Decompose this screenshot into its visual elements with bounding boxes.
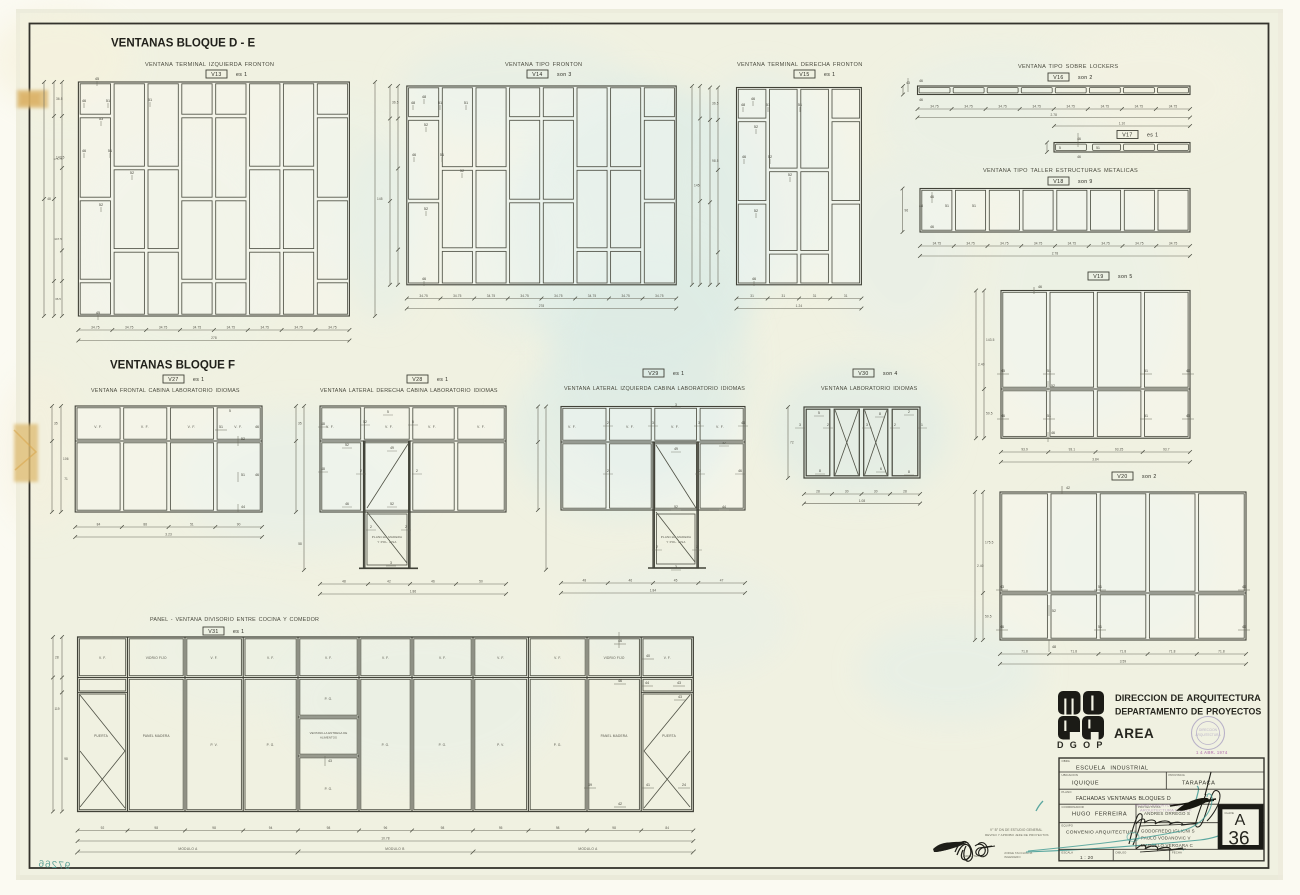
svg-text:46: 46 — [1077, 155, 1081, 159]
svg-text:V15: V15 — [799, 72, 809, 78]
svg-text:51: 51 — [108, 149, 112, 153]
svg-text:31: 31 — [844, 294, 848, 298]
svg-text:93.25: 93.25 — [1115, 448, 1124, 452]
svg-text:3: 3 — [799, 423, 801, 427]
svg-text:45: 45 — [96, 311, 100, 315]
svg-text:34.75: 34.75 — [1135, 105, 1144, 109]
svg-text:34.75: 34.75 — [520, 294, 529, 298]
svg-text:1.86: 1.86 — [410, 590, 417, 594]
svg-text:52: 52 — [241, 437, 245, 441]
svg-text:EQUIPO: EQUIPO — [1062, 824, 1074, 828]
svg-text:98: 98 — [64, 757, 68, 761]
svg-text:46: 46 — [431, 580, 435, 584]
svg-text:51: 51 — [190, 523, 194, 527]
svg-text:46: 46 — [82, 99, 86, 103]
svg-text:3: 3 — [675, 403, 677, 407]
svg-text:V. F.: V. F. — [141, 425, 149, 429]
svg-text:ALIMENTOS: ALIMENTOS — [320, 736, 337, 740]
svg-text:P. G.: P. G. — [325, 697, 333, 701]
svg-text:36: 36 — [1228, 829, 1249, 850]
svg-text:34.75: 34.75 — [1169, 105, 1178, 109]
svg-text:5: 5 — [229, 409, 231, 413]
svg-text:46: 46 — [255, 473, 259, 477]
svg-text:52: 52 — [754, 209, 758, 213]
svg-text:51: 51 — [972, 204, 976, 208]
svg-text:34.75: 34.75 — [1101, 242, 1110, 246]
svg-text:51: 51 — [1144, 414, 1148, 418]
svg-text:39: 39 — [588, 783, 592, 787]
svg-text:V. F.: V. F. — [439, 656, 446, 660]
svg-text:119: 119 — [54, 707, 59, 711]
svg-text:52: 52 — [424, 207, 428, 211]
svg-text:MODULO B: MODULO B — [385, 847, 404, 851]
svg-text:Y POL. LISA: Y POL. LISA — [377, 540, 396, 544]
svg-text:PLANCHA MADERA: PLANCHA MADERA — [372, 535, 402, 539]
svg-text:V27: V27 — [168, 377, 178, 383]
svg-text:2: 2 — [370, 525, 372, 529]
svg-text:71.8: 71.8 — [1021, 650, 1028, 654]
svg-text:93.1: 93.1 — [1069, 448, 1076, 452]
svg-text:51: 51 — [766, 103, 770, 107]
svg-text:36.5: 36.5 — [55, 297, 61, 301]
svg-text:son 5: son 5 — [1118, 274, 1133, 280]
svg-text:34.75: 34.75 — [1067, 105, 1076, 109]
svg-text:V30: V30 — [858, 371, 868, 377]
svg-text:VIDRIO FIJO: VIDRIO FIJO — [146, 656, 167, 660]
svg-text:A: A — [1235, 812, 1246, 829]
svg-text:MODULO A: MODULO A — [578, 847, 598, 851]
svg-text:46: 46 — [1038, 285, 1042, 289]
svg-text:34.75: 34.75 — [1000, 242, 1009, 246]
svg-text:51: 51 — [241, 473, 245, 477]
svg-text:OBRA: OBRA — [1062, 759, 1070, 763]
svg-text:34.75: 34.75 — [1068, 242, 1077, 246]
svg-text:52: 52 — [768, 155, 772, 159]
svg-text:34.75: 34.75 — [419, 294, 428, 298]
svg-text:52: 52 — [130, 171, 134, 175]
svg-text:42: 42 — [387, 580, 391, 584]
svg-text:46: 46 — [618, 679, 622, 683]
svg-text:46: 46 — [412, 153, 416, 157]
svg-text:45: 45 — [1001, 369, 1005, 373]
svg-text:43: 43 — [328, 759, 332, 763]
svg-text:42: 42 — [618, 802, 622, 806]
svg-text:31: 31 — [813, 294, 817, 298]
svg-text:Y POL. LISA: Y POL. LISA — [666, 540, 685, 544]
svg-text:1.10: 1.10 — [1119, 122, 1126, 126]
svg-text:147.5: 147.5 — [54, 237, 62, 241]
svg-text:PAULO VODANOVIC V: PAULO VODANOVIC V — [1141, 836, 1191, 841]
svg-text:46: 46 — [1051, 431, 1055, 435]
svg-text:84: 84 — [665, 826, 669, 830]
svg-text:52: 52 — [754, 125, 758, 129]
svg-text:52: 52 — [1052, 609, 1056, 613]
svg-text:1 : 20: 1 : 20 — [1080, 855, 1093, 860]
svg-text:42: 42 — [1066, 486, 1070, 490]
svg-text:88: 88 — [143, 523, 147, 527]
svg-text:es 1: es 1 — [236, 72, 247, 78]
svg-text:PLANCHA MADERA: PLANCHA MADERA — [661, 535, 691, 539]
svg-text:VENTANAS BLOQUE F: VENTANAS BLOQUE F — [110, 360, 235, 372]
svg-text:34.75: 34.75 — [655, 294, 664, 298]
svg-text:3.84: 3.84 — [1092, 458, 1099, 462]
svg-text:V29: V29 — [648, 371, 658, 377]
svg-text:95: 95 — [499, 826, 503, 830]
svg-text:48: 48 — [741, 103, 745, 107]
svg-text:48: 48 — [321, 422, 325, 426]
svg-text:40: 40 — [646, 654, 650, 658]
svg-text:P. G.: P. G. — [267, 743, 275, 747]
svg-text:71: 71 — [64, 477, 68, 481]
svg-text:5: 5 — [1059, 146, 1061, 150]
svg-text:V. F.: V. F. — [234, 425, 242, 429]
svg-text:34.75: 34.75 — [964, 105, 973, 109]
svg-text:34.75: 34.75 — [621, 294, 630, 298]
svg-text:VENTANA TERMINAL IZQUIERDA: VENTANA TERMINAL IZQUIERDA FRONTON — [145, 62, 274, 68]
svg-text:3: 3 — [390, 561, 392, 565]
svg-text:TARAPACA: TARAPACA — [1182, 781, 1215, 787]
svg-text:84: 84 — [97, 523, 101, 527]
svg-text:VENTANA TIPO FRONTON: VENTANA TIPO FRONTON — [505, 62, 582, 68]
svg-text:MODULO A: MODULO A — [178, 847, 198, 851]
svg-text:VENTANA LATERAL IZQUIERDA C: VENTANA LATERAL IZQUIERDA CABINA LABORAT… — [564, 386, 745, 392]
svg-text:V16: V16 — [1053, 75, 1063, 81]
svg-text:V13: V13 — [211, 72, 221, 78]
svg-text:24: 24 — [682, 783, 686, 787]
svg-text:V° B° DN DE ESTUDIO GENERAL: V° B° DN DE ESTUDIO GENERAL — [990, 828, 1042, 832]
svg-text:34.75: 34.75 — [1101, 105, 1110, 109]
svg-text:es 1: es 1 — [824, 72, 835, 78]
svg-text:145: 145 — [694, 183, 700, 187]
svg-text:34.75: 34.75 — [125, 326, 134, 330]
svg-text:46: 46 — [422, 277, 426, 281]
svg-text:P. V.: P. V. — [210, 743, 217, 747]
svg-text:51: 51 — [1047, 369, 1051, 373]
svg-text:P. G.: P. G. — [554, 743, 562, 747]
svg-text:145: 145 — [377, 197, 383, 201]
svg-text:V. F.: V. F. — [554, 656, 561, 660]
svg-text:2: 2 — [894, 423, 896, 427]
svg-text:VENTANA LATERAL DERECHA CAB: VENTANA LATERAL DERECHA CABINA LABORATOR… — [320, 388, 498, 394]
svg-text:VENTANILLA ENTREGA DE: VENTANILLA ENTREGA DE — [310, 731, 348, 735]
svg-text:2: 2 — [827, 423, 829, 427]
svg-text:48: 48 — [47, 197, 51, 201]
svg-text:6: 6 — [880, 467, 882, 471]
svg-text:34.75: 34.75 — [193, 326, 202, 330]
svg-text:ARQUITECTURA: ARQUITECTURA — [1195, 733, 1221, 737]
svg-text:P. G.: P. G. — [325, 787, 333, 791]
svg-text:98: 98 — [612, 826, 616, 830]
svg-text:8: 8 — [908, 470, 910, 474]
svg-text:46: 46 — [919, 79, 923, 83]
svg-text:35: 35 — [298, 422, 302, 426]
svg-text:P. G.: P. G. — [382, 743, 390, 747]
svg-text:V. F.: V. F. — [94, 425, 102, 429]
svg-text:V. F.: V. F. — [716, 425, 724, 429]
svg-text:48: 48 — [411, 101, 415, 105]
svg-text:28: 28 — [816, 490, 820, 494]
svg-text:10.78: 10.78 — [381, 837, 390, 841]
svg-text:93.7: 93.7 — [1163, 448, 1170, 452]
svg-text:50.5: 50.5 — [986, 412, 993, 416]
svg-text:106: 106 — [63, 457, 69, 461]
svg-text:98: 98 — [327, 826, 331, 830]
svg-text:71.8: 71.8 — [1169, 650, 1176, 654]
svg-text:34.75: 34.75 — [1032, 105, 1041, 109]
svg-text:94: 94 — [269, 826, 273, 830]
svg-text:V17: V17 — [1122, 133, 1132, 139]
svg-text:V. F.: V. F. — [188, 425, 196, 429]
svg-text:son 4: son 4 — [883, 371, 898, 377]
svg-text:51: 51 — [1098, 625, 1102, 629]
svg-text:VENTANA LABORATORIO IDIOMAS: VENTANA LABORATORIO IDIOMAS — [821, 386, 918, 392]
svg-text:52: 52 — [1051, 384, 1055, 388]
svg-text:3: 3 — [698, 421, 700, 425]
svg-text:INGENIERO: INGENIERO — [1004, 855, 1021, 859]
svg-text:46: 46 — [1077, 137, 1081, 141]
svg-text:46: 46 — [930, 225, 934, 229]
svg-text:45: 45 — [1186, 414, 1190, 418]
svg-text:34.75: 34.75 — [1169, 242, 1178, 246]
svg-text:CONVENIO ARQUITECTURA: CONVENIO ARQUITECTURA — [1066, 830, 1137, 836]
svg-text:IQUIQUE: IQUIQUE — [1072, 781, 1099, 787]
svg-text:46: 46 — [345, 502, 349, 506]
svg-text:HUGO FERREIRA: HUGO FERREIRA — [1072, 812, 1127, 818]
svg-text:es 1: es 1 — [673, 371, 684, 377]
svg-text:es 1: es 1 — [1147, 133, 1158, 139]
svg-text:93.9: 93.9 — [1021, 448, 1028, 452]
svg-text:98: 98 — [556, 826, 560, 830]
svg-text:48: 48 — [583, 579, 587, 583]
svg-text:51: 51 — [1047, 414, 1051, 418]
svg-text:1 4 ABR. 1974: 1 4 ABR. 1974 — [1196, 750, 1228, 755]
svg-text:2.78: 2.78 — [1050, 113, 1057, 117]
svg-text:5: 5 — [412, 420, 414, 424]
svg-text:51: 51 — [148, 98, 152, 102]
svg-text:71.8: 71.8 — [1218, 650, 1225, 654]
svg-text:FECHA: FECHA — [1172, 850, 1182, 854]
svg-text:UBICACION: UBICACION — [1062, 773, 1078, 777]
svg-text:V20: V20 — [1117, 474, 1127, 480]
svg-text:51: 51 — [106, 99, 110, 103]
svg-text:34.75: 34.75 — [328, 326, 337, 330]
svg-text:D G O P: D G O P — [1057, 740, 1104, 750]
svg-text:V. F.: V. F. — [382, 656, 389, 660]
svg-text:V18: V18 — [1053, 179, 1063, 185]
svg-text:46: 46 — [741, 421, 745, 425]
svg-text:44: 44 — [241, 505, 245, 509]
svg-text:43: 43 — [1000, 585, 1004, 589]
svg-text:VENTANAS BLOQUE D - E: VENTANAS BLOQUE D - E — [111, 38, 256, 50]
svg-text:58: 58 — [298, 542, 302, 546]
svg-text:48: 48 — [422, 95, 426, 99]
svg-text:V. F.: V. F. — [211, 656, 218, 660]
svg-text:44: 44 — [722, 505, 726, 509]
svg-text:51: 51 — [464, 101, 468, 105]
svg-text:72: 72 — [790, 441, 794, 445]
svg-text:P. G.: P. G. — [439, 743, 447, 747]
svg-text:71.8: 71.8 — [1070, 650, 1077, 654]
svg-text:34.75: 34.75 — [1135, 242, 1144, 246]
svg-text:1.08: 1.08 — [859, 499, 866, 503]
svg-text:52: 52 — [390, 502, 394, 506]
svg-text:96: 96 — [384, 826, 388, 830]
svg-text:51: 51 — [1144, 369, 1148, 373]
svg-text:52: 52 — [722, 441, 726, 445]
svg-text:P. V.: P. V. — [497, 743, 504, 747]
svg-text:52: 52 — [674, 505, 678, 509]
svg-text:VENTANA TIPO SOBRE LOCKERS: VENTANA TIPO SOBRE LOCKERS — [1018, 64, 1118, 70]
svg-text:DIRECCION: DIRECCION — [1199, 728, 1218, 732]
svg-text:98: 98 — [154, 826, 158, 830]
svg-text:44: 44 — [645, 681, 649, 685]
svg-text:51: 51 — [1098, 585, 1102, 589]
svg-text:34.75: 34.75 — [554, 294, 563, 298]
svg-text:3: 3 — [675, 565, 677, 569]
svg-text:34.75: 34.75 — [933, 242, 942, 246]
svg-text:PANEL - VENTANA DIVISORIO EN: PANEL - VENTANA DIVISORIO ENTRE COCINA Y… — [150, 617, 319, 623]
svg-text:278: 278 — [539, 304, 545, 308]
svg-text:46: 46 — [752, 277, 756, 281]
svg-text:34.75: 34.75 — [588, 294, 597, 298]
svg-text:REVISO Y APROBO JEFE DE PRO: REVISO Y APROBO JEFE DE PROYECTOS — [985, 833, 1049, 837]
svg-text:34.75: 34.75 — [227, 326, 236, 330]
svg-text:46: 46 — [618, 639, 622, 643]
svg-text:98: 98 — [212, 826, 216, 830]
svg-text:VENTANA FRONTAL CABINA LABO: VENTANA FRONTAL CABINA LABORATORIO IDIOM… — [91, 388, 240, 394]
svg-text:92: 92 — [101, 826, 105, 830]
svg-text:96: 96 — [905, 208, 909, 212]
svg-text:143.5: 143.5 — [986, 338, 995, 342]
svg-text:46: 46 — [255, 425, 259, 429]
svg-text:V28: V28 — [412, 377, 422, 383]
svg-text:1.84: 1.84 — [650, 589, 657, 593]
svg-text:V. F.: V. F. — [267, 656, 274, 660]
svg-text:46: 46 — [742, 155, 746, 159]
svg-text:98: 98 — [441, 826, 445, 830]
svg-text:V. F.: V. F. — [477, 425, 485, 429]
svg-text:VENTANA TERMINAL DERECHA FR: VENTANA TERMINAL DERECHA FRONTON — [737, 62, 863, 68]
svg-text:46: 46 — [738, 469, 742, 473]
svg-text:V31: V31 — [208, 629, 218, 635]
svg-text:V19: V19 — [1093, 274, 1103, 280]
svg-text:278: 278 — [211, 336, 217, 340]
svg-text:45: 45 — [95, 77, 99, 81]
svg-text:es 1: es 1 — [193, 377, 204, 383]
svg-text:49: 49 — [674, 447, 678, 451]
svg-text:1.24: 1.24 — [796, 304, 803, 308]
svg-text:ESCUELA INDUSTRIAL: ESCUELA INDUSTRIAL — [1076, 766, 1149, 772]
svg-text:71.8: 71.8 — [1120, 650, 1127, 654]
svg-text:30: 30 — [845, 490, 849, 494]
svg-text:COORDINADOR: COORDINADOR — [1062, 805, 1084, 809]
svg-text:DIRECCION DE ARQUITECTURA: DIRECCION DE ARQUITECTURA — [1115, 693, 1261, 703]
svg-text:5: 5 — [387, 410, 389, 414]
svg-text:48: 48 — [919, 204, 923, 208]
svg-text:46: 46 — [751, 97, 755, 101]
svg-text:90: 90 — [237, 523, 241, 527]
svg-text:2: 2 — [416, 469, 418, 473]
svg-text:34.75: 34.75 — [260, 326, 269, 330]
svg-text:ESCALA: ESCALA — [1062, 850, 1074, 854]
svg-text:34.75: 34.75 — [998, 105, 1007, 109]
svg-text:34.75: 34.75 — [487, 294, 496, 298]
svg-text:es 1: es 1 — [437, 377, 448, 383]
svg-text:V. F.: V. F. — [325, 656, 332, 660]
svg-text:28: 28 — [55, 655, 59, 659]
svg-text:8: 8 — [819, 469, 821, 473]
svg-text:DEPARTAMENTO DE PROYECTOS: DEPARTAMENTO DE PROYECTOS — [1115, 707, 1261, 717]
svg-text:2: 2 — [656, 545, 658, 549]
svg-text:V. F.: V. F. — [664, 656, 671, 660]
svg-text:PUERTA: PUERTA — [94, 734, 109, 738]
svg-text:52: 52 — [99, 203, 103, 207]
svg-text:46: 46 — [919, 98, 923, 102]
svg-text:2: 2 — [607, 421, 609, 425]
svg-text:VENTANA TIPO TALLER ESTRUCT: VENTANA TIPO TALLER ESTRUCTURAS METALICA… — [983, 168, 1138, 174]
svg-text:son 2: son 2 — [1142, 474, 1157, 480]
svg-text:2: 2 — [699, 469, 701, 473]
svg-text:47: 47 — [720, 579, 724, 583]
svg-text:34.75: 34.75 — [159, 326, 168, 330]
svg-text:34.75: 34.75 — [453, 294, 462, 298]
svg-text:53: 53 — [99, 117, 103, 121]
svg-text:3.59: 3.59 — [1120, 660, 1127, 664]
svg-text:49: 49 — [390, 446, 394, 450]
svg-text:52: 52 — [345, 443, 349, 447]
svg-text:AREA: AREA — [1114, 726, 1154, 741]
svg-text:28: 28 — [903, 490, 907, 494]
svg-text:41: 41 — [646, 783, 650, 787]
svg-text:52: 52 — [460, 169, 464, 173]
svg-text:175.75: 175.75 — [53, 157, 63, 161]
svg-text:46: 46 — [1186, 369, 1190, 373]
svg-text:46: 46 — [1000, 625, 1004, 629]
svg-text:3.23: 3.23 — [165, 533, 172, 537]
svg-text:51: 51 — [440, 153, 444, 157]
svg-text:43: 43 — [677, 681, 681, 685]
svg-text:31: 31 — [781, 294, 785, 298]
svg-text:V14: V14 — [532, 72, 542, 78]
svg-text:son 9: son 9 — [1078, 179, 1093, 185]
svg-text:V. F.: V. F. — [671, 425, 679, 429]
svg-text:son 3: son 3 — [557, 72, 572, 78]
svg-text:PUERTA: PUERTA — [662, 734, 677, 738]
svg-text:45: 45 — [674, 579, 678, 583]
svg-text:50.5: 50.5 — [985, 615, 992, 619]
svg-text:51: 51 — [798, 103, 802, 107]
svg-text:51: 51 — [1096, 146, 1100, 150]
svg-text:34.75: 34.75 — [1034, 242, 1043, 246]
svg-text:5: 5 — [818, 411, 820, 415]
svg-text:30: 30 — [874, 490, 878, 494]
svg-text:46: 46 — [1001, 414, 1005, 418]
svg-text:V. F.: V. F. — [428, 425, 436, 429]
svg-text:97266: 97266 — [37, 859, 70, 872]
svg-text:3: 3 — [866, 423, 868, 427]
svg-text:8: 8 — [879, 412, 881, 416]
svg-text:52: 52 — [788, 173, 792, 177]
svg-text:3: 3 — [652, 421, 654, 425]
svg-text:son 2: son 2 — [1078, 75, 1093, 81]
svg-text:PANEL MADERA: PANEL MADERA — [601, 734, 629, 738]
svg-text:34.75: 34.75 — [294, 326, 303, 330]
svg-text:175.5: 175.5 — [985, 541, 994, 545]
svg-text:50: 50 — [479, 580, 483, 584]
svg-text:52: 52 — [363, 420, 367, 424]
svg-text:34.75: 34.75 — [930, 105, 939, 109]
svg-text:52: 52 — [424, 123, 428, 127]
